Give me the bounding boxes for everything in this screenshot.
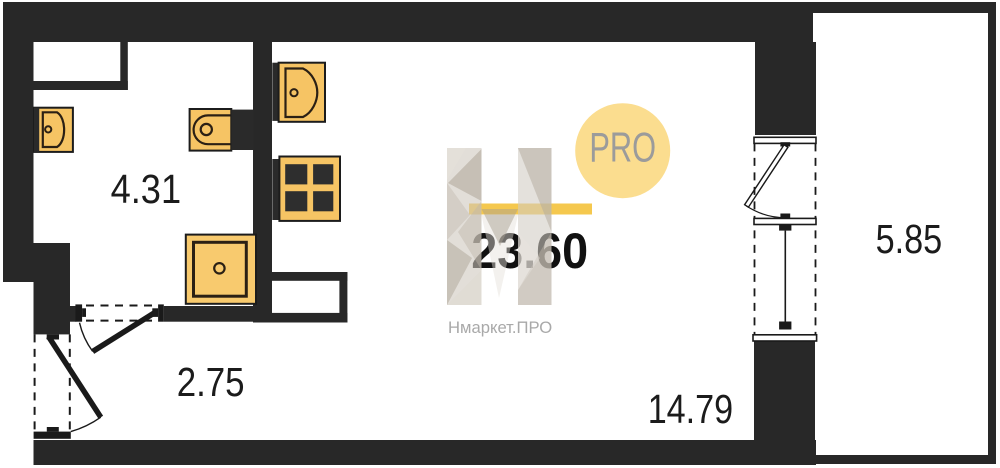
svg-text:PRO: PRO bbox=[589, 124, 656, 171]
svg-text:4.31: 4.31 bbox=[111, 166, 182, 212]
svg-text:5.85: 5.85 bbox=[876, 216, 943, 262]
svg-text:2.75: 2.75 bbox=[177, 359, 245, 405]
svg-text:Нмаркет.ПРО: Нмаркет.ПРО bbox=[448, 319, 552, 337]
svg-text:14.79: 14.79 bbox=[648, 386, 733, 432]
